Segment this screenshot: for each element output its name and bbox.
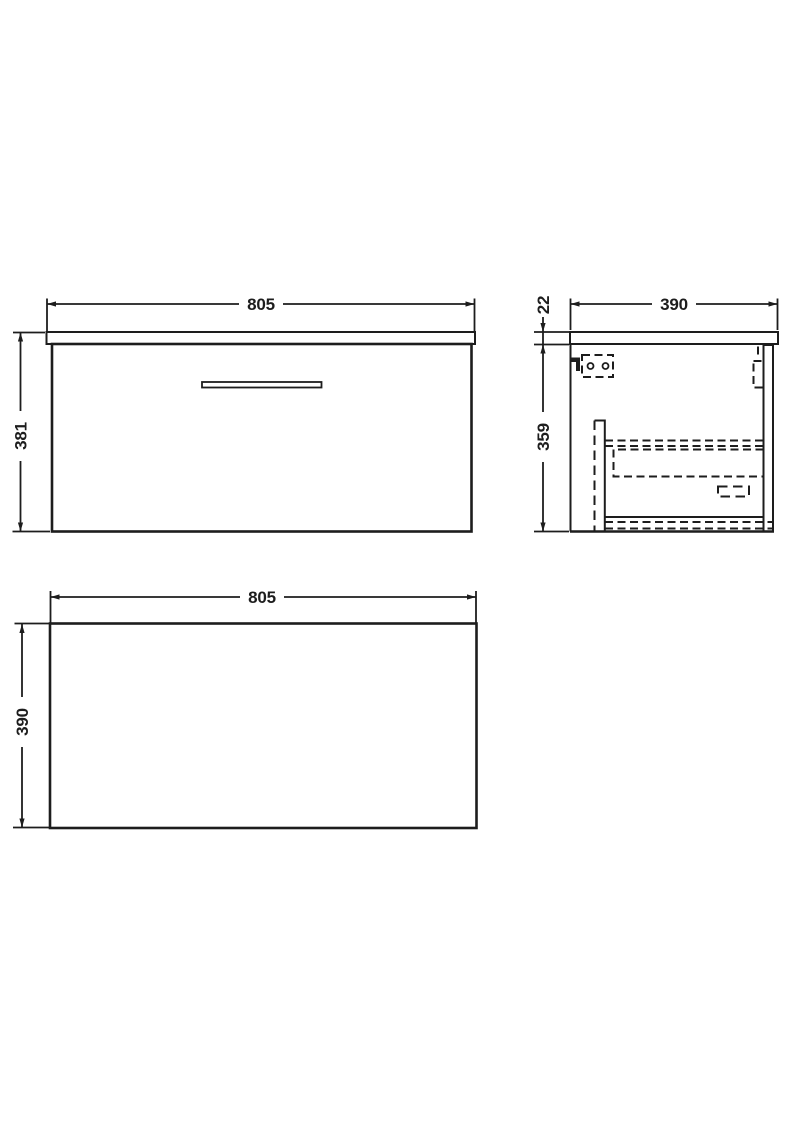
worktop-thickness-label: 22 bbox=[534, 296, 553, 315]
arrowhead bbox=[540, 323, 545, 332]
arrowhead bbox=[18, 523, 23, 532]
plan-depth-dimension: 390 bbox=[13, 624, 49, 828]
arrowhead bbox=[540, 345, 545, 354]
drawer-hidden-detail bbox=[595, 421, 774, 532]
arrowhead bbox=[18, 333, 23, 342]
arrowhead bbox=[51, 594, 60, 599]
bracket-hook bbox=[571, 358, 581, 372]
side-depth-label: 390 bbox=[660, 295, 688, 314]
drawer-side-panel-hidden bbox=[614, 450, 764, 477]
bracket-screw-hole bbox=[603, 363, 609, 369]
plan-width-dimension: 805 bbox=[51, 588, 477, 623]
arrowhead bbox=[467, 594, 476, 599]
front-view: 805 381 bbox=[12, 295, 476, 532]
side-height-dimensions: 22 359 bbox=[534, 296, 569, 532]
arrowhead bbox=[571, 301, 580, 306]
plan-width-label: 805 bbox=[248, 588, 276, 607]
front-width-dimension: 805 bbox=[47, 295, 475, 331]
bracket-screw-hole bbox=[588, 363, 594, 369]
front-carcass-outline bbox=[52, 344, 472, 532]
plan-depth-label: 390 bbox=[13, 708, 32, 736]
arrowhead bbox=[47, 301, 56, 306]
front-bracket bbox=[754, 347, 764, 388]
side-front-panel bbox=[764, 345, 774, 532]
technical-drawing-canvas: 805 381 bbox=[0, 0, 800, 1132]
arrowhead bbox=[466, 301, 475, 306]
front-height-dimension: 381 bbox=[12, 333, 51, 532]
arrowhead bbox=[540, 523, 545, 532]
carcass-height-label: 359 bbox=[534, 423, 553, 451]
drawer-front-edge bbox=[595, 421, 605, 532]
plan-worktop-outline bbox=[50, 624, 477, 829]
side-view: 390 22 359 bbox=[534, 295, 778, 532]
drawer-handle bbox=[202, 382, 322, 388]
front-worktop-outline bbox=[47, 332, 476, 344]
wall-bracket bbox=[571, 355, 614, 377]
front-width-label: 805 bbox=[247, 295, 275, 314]
drawer-runner-clip-hidden bbox=[718, 487, 749, 497]
drawing-sheet: 805 381 bbox=[0, 0, 800, 1132]
arrowhead bbox=[19, 819, 24, 828]
plan-view: 805 390 bbox=[13, 588, 477, 828]
arrowhead bbox=[769, 301, 778, 306]
bracket-clip-hidden bbox=[754, 361, 764, 388]
side-depth-dimension: 390 bbox=[571, 295, 778, 330]
arrowhead bbox=[19, 624, 24, 633]
front-height-label: 381 bbox=[12, 422, 31, 450]
side-worktop-outline bbox=[570, 332, 778, 344]
